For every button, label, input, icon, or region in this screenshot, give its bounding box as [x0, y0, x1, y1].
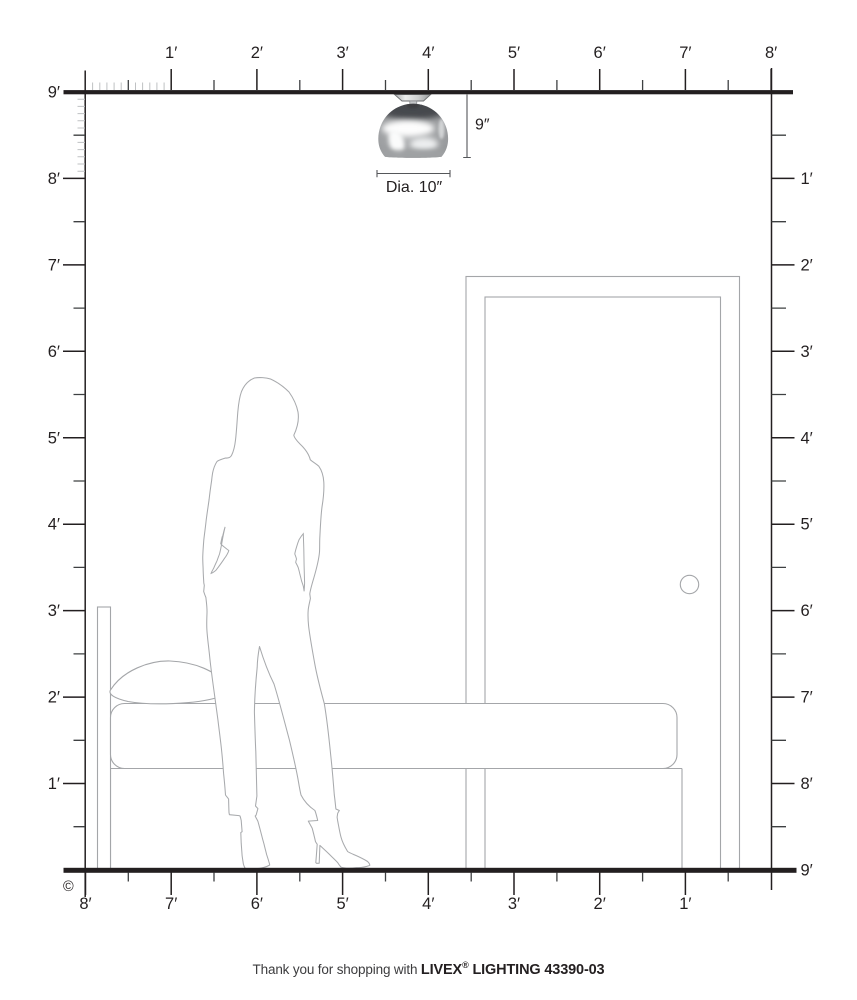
svg-text:Dia. 10″: Dia. 10″	[386, 179, 443, 196]
svg-text:2′: 2′	[801, 256, 813, 274]
svg-text:6′: 6′	[251, 895, 263, 913]
svg-text:8′: 8′	[48, 170, 60, 188]
svg-text:6′: 6′	[594, 44, 606, 62]
svg-text:1′: 1′	[801, 170, 813, 188]
svg-text:2′: 2′	[48, 689, 60, 707]
svg-text:6′: 6′	[801, 602, 813, 620]
svg-text:7′: 7′	[801, 689, 813, 707]
svg-text:7′: 7′	[679, 44, 691, 62]
svg-text:3′: 3′	[336, 44, 348, 62]
svg-text:9′: 9′	[801, 862, 813, 880]
svg-text:3′: 3′	[508, 895, 520, 913]
svg-text:6′: 6′	[48, 343, 60, 361]
svg-text:4′: 4′	[422, 895, 434, 913]
svg-text:2′: 2′	[594, 895, 606, 913]
svg-text:7′: 7′	[48, 256, 60, 274]
svg-text:3′: 3′	[801, 343, 813, 361]
svg-text:2′: 2′	[251, 44, 263, 62]
svg-text:9″: 9″	[475, 117, 490, 134]
svg-text:7′: 7′	[165, 895, 177, 913]
svg-text:4′: 4′	[48, 516, 60, 534]
svg-text:8′: 8′	[801, 775, 813, 793]
svg-text:3′: 3′	[48, 602, 60, 620]
svg-text:1′: 1′	[165, 44, 177, 62]
svg-text:9′: 9′	[48, 84, 60, 102]
svg-text:©: ©	[63, 879, 74, 895]
svg-text:5′: 5′	[48, 429, 60, 447]
svg-text:8′: 8′	[79, 895, 91, 913]
svg-text:1′: 1′	[679, 895, 691, 913]
svg-text:5′: 5′	[508, 44, 520, 62]
svg-text:1′: 1′	[48, 775, 60, 793]
svg-text:4′: 4′	[422, 44, 434, 62]
svg-text:5′: 5′	[336, 895, 348, 913]
svg-text:4′: 4′	[801, 429, 813, 447]
svg-text:8′: 8′	[765, 44, 777, 62]
svg-text:5′: 5′	[801, 516, 813, 534]
